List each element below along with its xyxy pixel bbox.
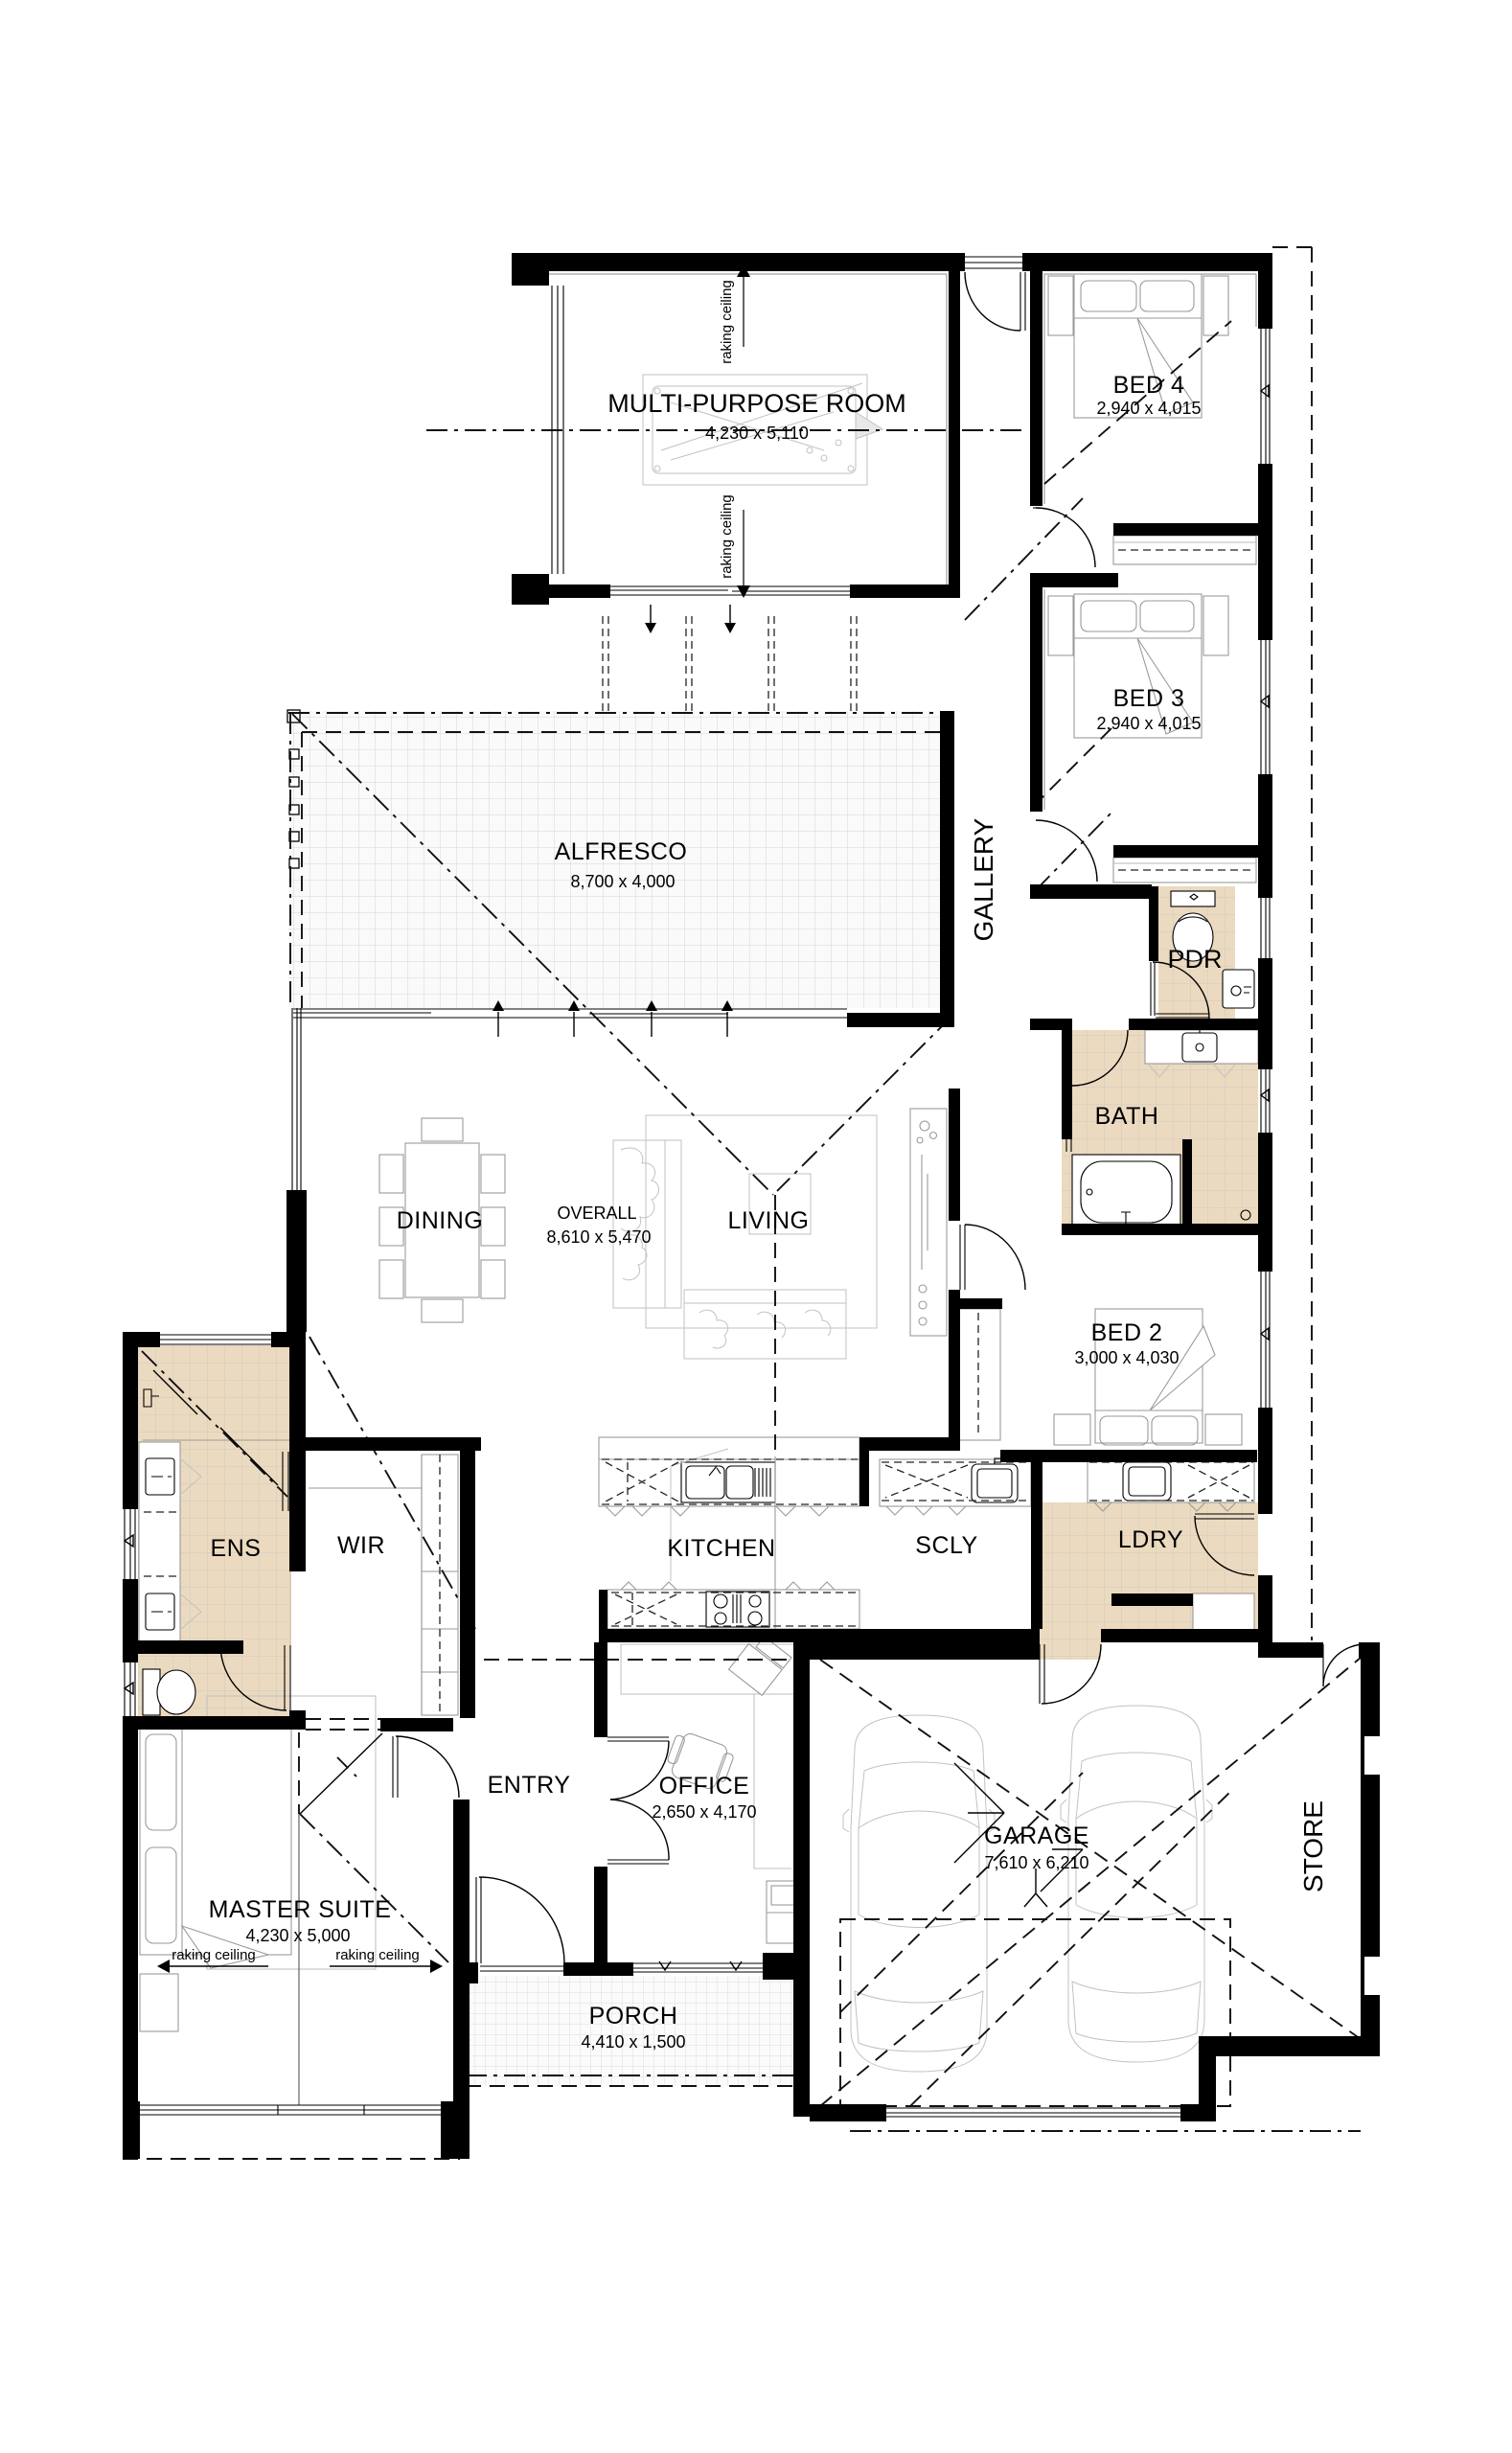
svg-text:4,230 x 5,000: 4,230 x 5,000	[245, 1926, 350, 1945]
svg-text:8,700 x 4,000: 8,700 x 4,000	[570, 872, 675, 891]
svg-text:4,230 x 5,110: 4,230 x 5,110	[705, 424, 809, 443]
svg-text:PORCH: PORCH	[589, 2003, 678, 2029]
svg-text:2,940 x 4,015: 2,940 x 4,015	[1096, 714, 1201, 733]
svg-text:OVERALL: OVERALL	[557, 1204, 636, 1223]
svg-text:8,610 x 5,470: 8,610 x 5,470	[546, 1227, 651, 1247]
svg-text:LIVING: LIVING	[728, 1207, 810, 1234]
svg-text:KITCHEN: KITCHEN	[667, 1535, 775, 1562]
svg-text:2,940 x 4,015: 2,940 x 4,015	[1096, 399, 1201, 418]
svg-text:ALFRESCO: ALFRESCO	[555, 838, 688, 865]
svg-text:raking ceiling: raking ceiling	[719, 494, 735, 579]
svg-text:ENS: ENS	[211, 1535, 262, 1562]
svg-text:BED 3: BED 3	[1113, 685, 1185, 712]
svg-text:4,410 x 1,500: 4,410 x 1,500	[581, 2032, 685, 2052]
svg-text:MASTER SUITE: MASTER SUITE	[209, 1896, 392, 1923]
svg-text:7,610 x 6,210: 7,610 x 6,210	[984, 1853, 1088, 1872]
svg-text:3,000 x 4,030: 3,000 x 4,030	[1074, 1348, 1179, 1367]
svg-text:SCLY: SCLY	[915, 1532, 977, 1559]
svg-text:MULTI-PURPOSE ROOM: MULTI-PURPOSE ROOM	[607, 389, 906, 418]
svg-text:DINING: DINING	[397, 1207, 484, 1234]
svg-text:STORE: STORE	[1298, 1800, 1328, 1892]
svg-text:BATH: BATH	[1095, 1103, 1159, 1130]
svg-text:raking ceiling: raking ceiling	[335, 1947, 420, 1963]
svg-text:raking ceiling: raking ceiling	[719, 280, 735, 364]
svg-text:OFFICE: OFFICE	[659, 1773, 750, 1800]
svg-text:BED 4: BED 4	[1113, 372, 1185, 399]
svg-text:raking ceiling: raking ceiling	[172, 1947, 256, 1963]
svg-text:GARAGE: GARAGE	[984, 1823, 1089, 1849]
svg-text:GALLERY: GALLERY	[969, 817, 998, 941]
svg-text:PDR: PDR	[1167, 945, 1222, 974]
svg-text:ENTRY: ENTRY	[488, 1772, 571, 1799]
svg-text:WIR: WIR	[337, 1532, 385, 1559]
svg-text:LDRY: LDRY	[1118, 1526, 1183, 1553]
svg-text:2,650 x 4,170: 2,650 x 4,170	[652, 1802, 756, 1822]
svg-text:BED 2: BED 2	[1091, 1319, 1163, 1346]
